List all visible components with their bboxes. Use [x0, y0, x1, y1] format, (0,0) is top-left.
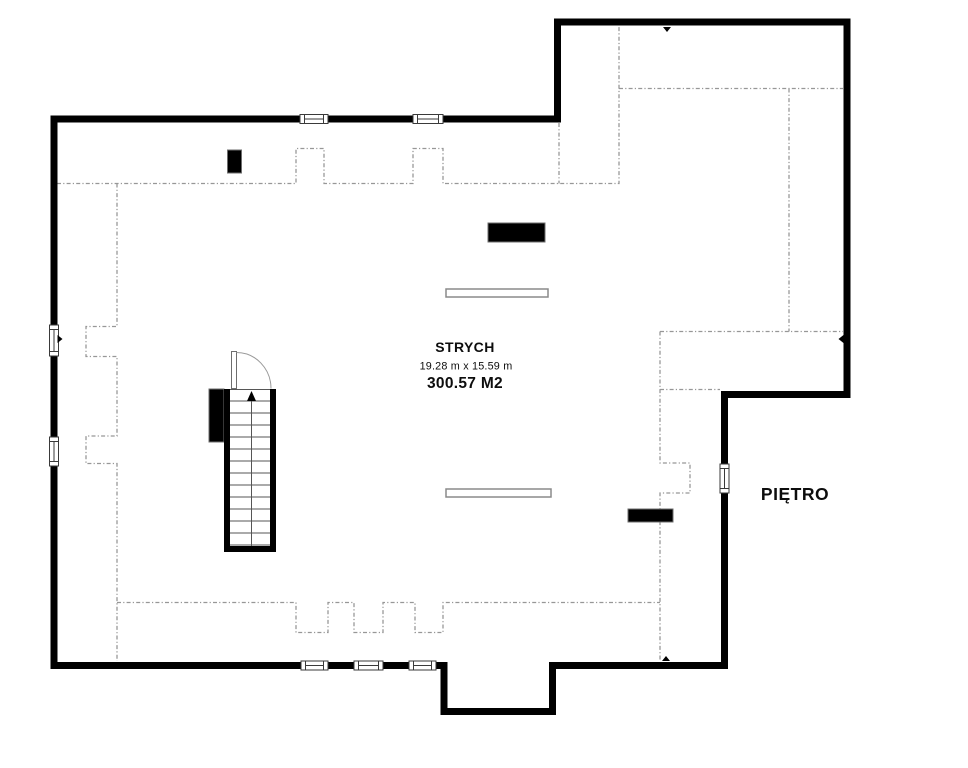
attic-height-boundary-line: [57, 27, 619, 184]
stair-side-block: [209, 389, 224, 442]
floor-label: PIĘTRO: [761, 484, 829, 504]
stair-enclosure-wall: [270, 389, 276, 552]
stair-enclosure-wall: [224, 546, 276, 552]
room-name-label: STRYCH: [435, 339, 494, 355]
section-tick: [839, 335, 844, 343]
chimney: [488, 223, 545, 242]
window: [354, 661, 383, 670]
door-swing-arc: [237, 353, 272, 389]
attic-height-boundary-line: [660, 332, 690, 662]
window: [413, 115, 443, 124]
room-area-label: 300.57 M2: [427, 375, 503, 392]
skylight: [446, 489, 551, 497]
skylight: [446, 289, 548, 297]
stair-direction-arrow: [247, 391, 256, 401]
stair-enclosure-wall: [224, 389, 230, 552]
staircase: [209, 352, 276, 553]
window: [720, 464, 729, 493]
section-tick: [663, 27, 671, 32]
attic-height-boundary-line: [117, 603, 660, 633]
window: [301, 661, 328, 670]
attic-height-boundary-line: [86, 184, 117, 662]
windows: [50, 115, 730, 671]
window: [50, 437, 59, 466]
window: [50, 325, 59, 356]
labels: STRYCH 19.28 m x 15.59 m 300.57 M2 PIĘTR…: [420, 339, 829, 504]
section-tick: [58, 335, 63, 343]
skylights: [446, 289, 551, 497]
floor-plan-canvas: STRYCH 19.28 m x 15.59 m 300.57 M2 PIĘTR…: [0, 0, 968, 768]
window: [409, 661, 436, 670]
chimneys: [228, 150, 674, 522]
floor-plan-page: STRYCH 19.28 m x 15.59 m 300.57 M2 PIĘTR…: [0, 0, 968, 768]
window: [300, 115, 328, 124]
door-leaf: [232, 352, 237, 389]
section-tick: [662, 656, 670, 661]
chimney: [228, 150, 242, 173]
chimney: [628, 509, 673, 522]
room-dimensions-label: 19.28 m x 15.59 m: [420, 361, 513, 373]
